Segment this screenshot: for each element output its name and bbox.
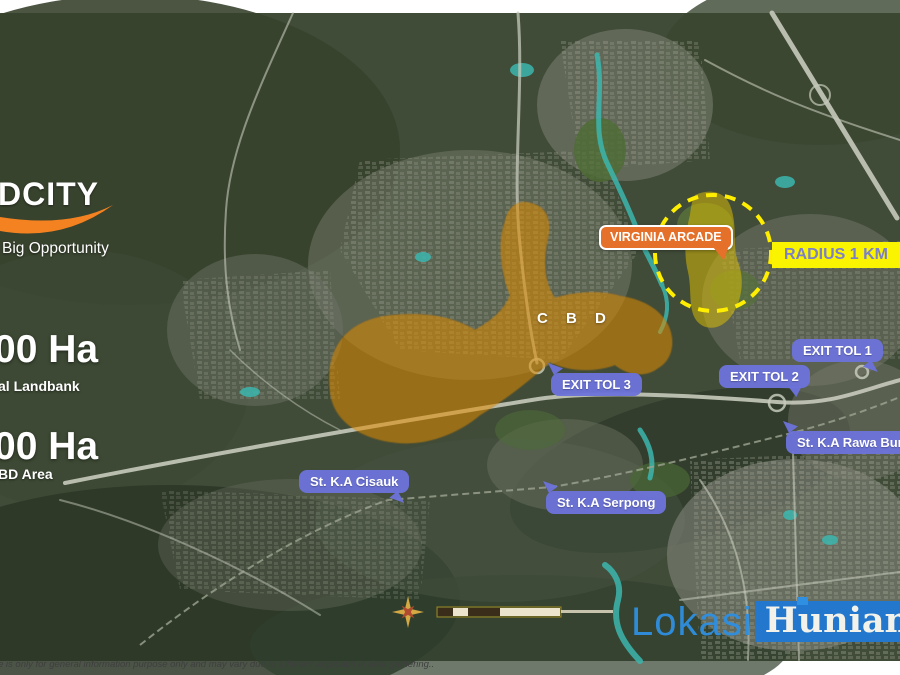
station-cisauk-label: St. K.A Cisauk xyxy=(310,474,398,489)
cbd-area-label: BD Area xyxy=(0,467,53,481)
station-serpong-label: St. K.A Serpong xyxy=(557,495,655,510)
virginia-arcade-label: VIRGINIA ARCADE xyxy=(610,230,722,244)
station-cisauk-callout: St. K.A Cisauk xyxy=(299,470,409,493)
cbd-area-value: 00 Ha xyxy=(0,427,98,466)
exit-tol-2-callout: EXIT TOL 2 xyxy=(719,365,810,388)
watermark-hunian-box: Hunian xyxy=(755,601,900,642)
exit-tol-3-label: EXIT TOL 3 xyxy=(562,377,631,392)
exit-tol-1-callout: EXIT TOL 1 xyxy=(792,339,883,362)
station-rawa-buntu-label: St. K.A Rawa Buntu xyxy=(797,435,900,450)
watermark-lokasi-text: Lokasi xyxy=(631,602,753,642)
slide: DCITY Big Opportunity 00 Ha al Landbank … xyxy=(0,0,900,675)
watermark-hunian-text: Hunian xyxy=(765,600,900,641)
exit-tol-2-label: EXIT TOL 2 xyxy=(730,369,799,384)
virginia-arcade-callout: VIRGINIA ARCADE xyxy=(599,225,733,250)
landbank-label: al Landbank xyxy=(0,379,80,393)
cbd-map-label: C B D xyxy=(537,310,613,327)
station-serpong-callout: St. K.A Serpong xyxy=(546,491,666,514)
lokasi-hunian-watermark: Lokasi Hunian xyxy=(631,601,900,642)
brand-logo-text: DCITY xyxy=(0,178,99,210)
station-rawa-buntu-callout: St. K.A Rawa Buntu xyxy=(786,431,900,454)
exit-tol-3-callout: EXIT TOL 3 xyxy=(551,373,642,396)
brand-tagline: Big Opportunity xyxy=(2,241,109,257)
radius-1km-label: RADIUS 1 KM xyxy=(772,242,900,268)
aerial-map xyxy=(0,0,900,675)
landbank-value: 00 Ha xyxy=(0,330,98,369)
exit-tol-1-label: EXIT TOL 1 xyxy=(803,343,872,358)
watermark-square-icon xyxy=(797,597,808,605)
disclaimer-text: e is only for general information purpos… xyxy=(0,659,434,670)
